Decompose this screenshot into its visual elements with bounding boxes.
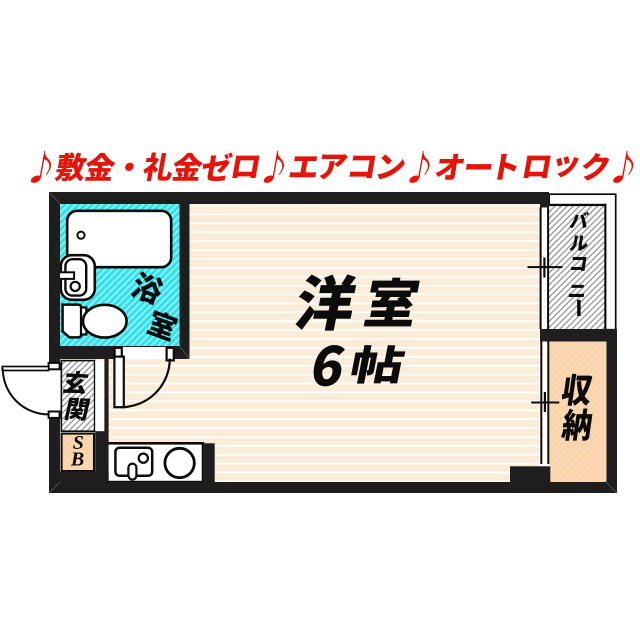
svg-text:B: B <box>70 449 84 471</box>
